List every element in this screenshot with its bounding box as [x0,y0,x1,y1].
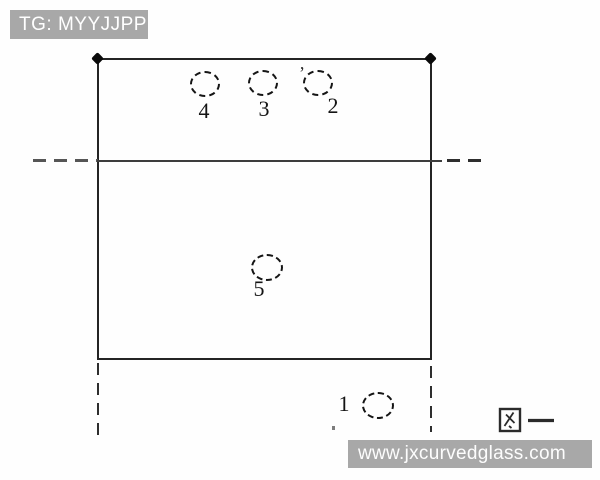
centerline-dashed-left [33,159,98,162]
watermark-website-bar: www.jxcurvedglass.com [348,440,592,468]
centerline-dashed-right [447,159,489,162]
centerline-solid [97,160,442,162]
hole-circle-1 [362,392,394,419]
scan-speck-near-hole-2: ’ [299,63,305,84]
extension-dashed-left [97,363,99,437]
hole-circle-3 [248,70,278,96]
extension-dashed-right [430,366,432,432]
scan-speck-bottom [332,426,335,430]
watermark-tag-text: TG: MYYJJPP [19,14,147,35]
hole-label-3: 3 [259,96,270,122]
hole-label-1: 1 [339,391,350,417]
hole-label-4: 4 [199,98,210,124]
watermark-website-text: www.jxcurvedglass.com [358,443,566,464]
hole-circle-4 [190,71,220,97]
figure-caption-glyphs [498,407,556,434]
scanned-figure-page: TG: MYYJJPP 4 3 2 5 1 ’ www.j [0,0,600,480]
figure-caption [498,407,556,434]
watermark-tag-badge: TG: MYYJJPP [10,10,148,39]
hole-label-2: 2 [328,93,339,119]
hole-label-5: 5 [254,276,265,302]
